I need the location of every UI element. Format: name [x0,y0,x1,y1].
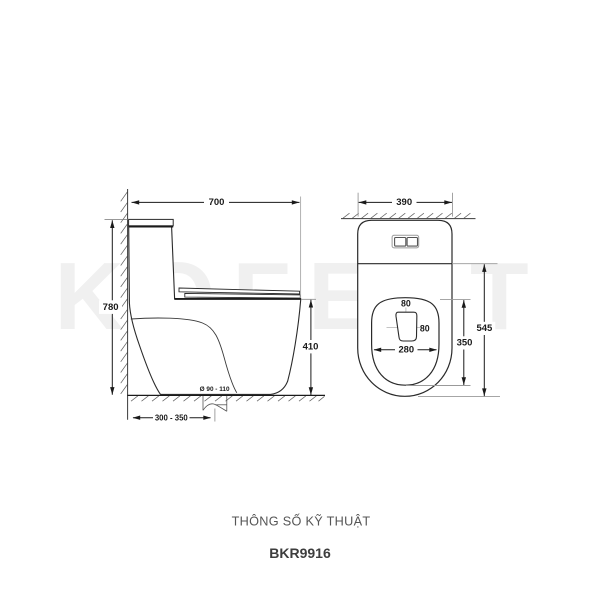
svg-text:545: 545 [476,323,493,334]
svg-text:780: 780 [103,302,119,313]
svg-text:THÔNG SỐ KỸ THUẬT: THÔNG SỐ KỸ THUẬT [232,514,371,529]
svg-text:300 - 350: 300 - 350 [155,413,189,422]
svg-text:BKR9916: BKR9916 [269,545,331,561]
svg-text:350: 350 [457,338,473,349]
svg-text:410: 410 [303,341,319,352]
svg-text:700: 700 [209,197,225,208]
svg-text:80: 80 [420,323,430,333]
svg-text:80: 80 [401,298,411,308]
svg-text:390: 390 [396,197,412,208]
svg-text:Ø 90 - 110: Ø 90 - 110 [200,386,230,393]
svg-text:280: 280 [398,344,414,355]
